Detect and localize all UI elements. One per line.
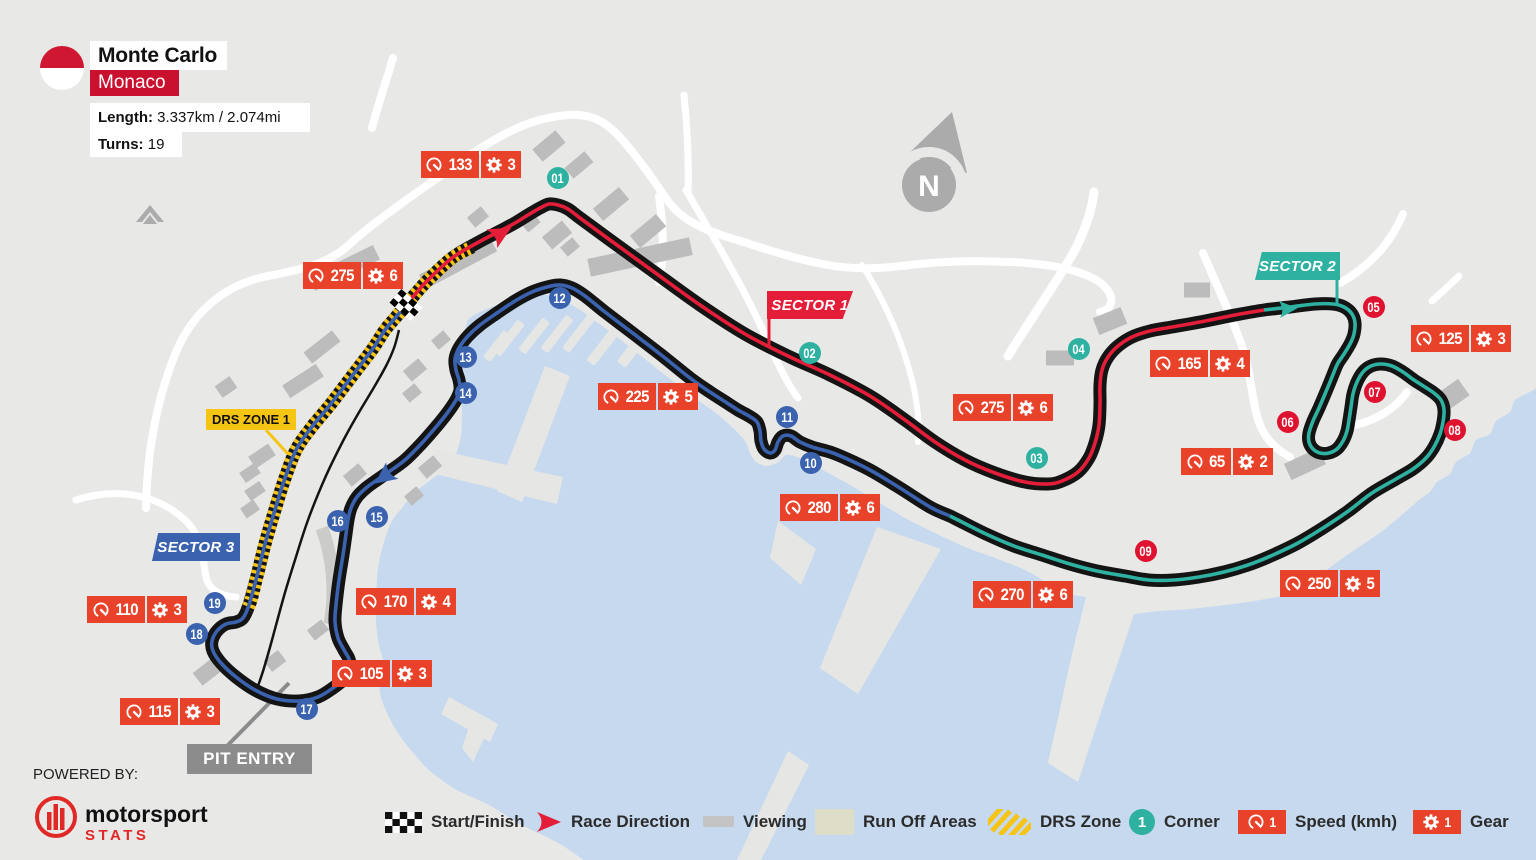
svg-text:motorsport: motorsport [85, 801, 208, 827]
svg-text:STATS: STATS [85, 827, 149, 843]
svg-text:N: N [918, 170, 940, 203]
